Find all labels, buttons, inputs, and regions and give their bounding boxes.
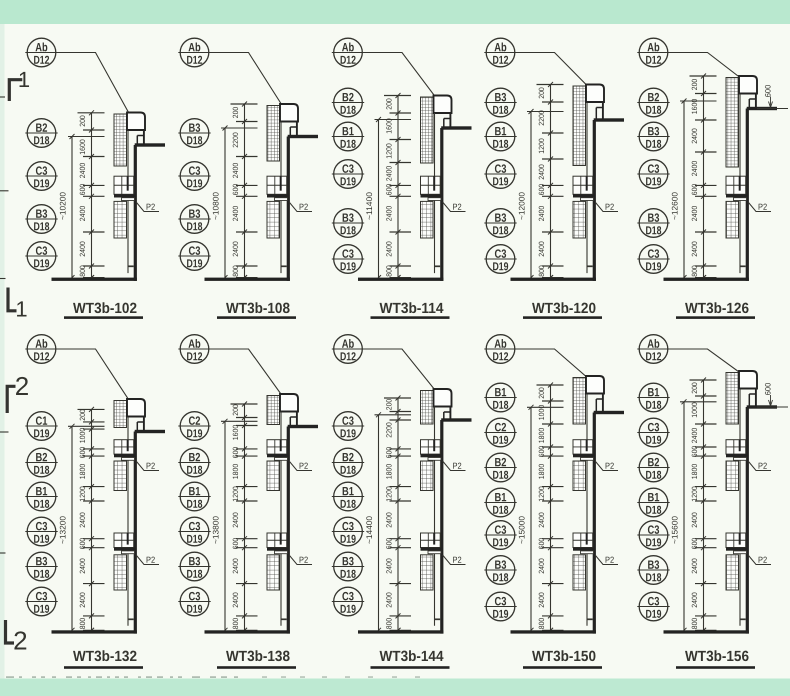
svg-text:D18: D18 [186,135,202,147]
svg-text:P2: P2 [146,461,155,471]
svg-text:D19: D19 [33,258,49,270]
svg-text:D19: D19 [645,435,661,447]
svg-text:2400: 2400 [690,241,699,257]
svg-text:1200: 1200 [231,486,240,502]
svg-text:B3: B3 [189,121,201,135]
svg-text:1200: 1200 [78,486,87,502]
svg-text:1200: 1200 [537,138,546,154]
svg-text:C3: C3 [36,244,48,258]
svg-text:~10800: ~10800 [212,192,221,220]
svg-text:2200: 2200 [385,422,394,438]
svg-text:800: 800 [78,265,87,277]
svg-text:D19: D19 [33,534,49,546]
svg-text:D18: D18 [645,139,661,151]
svg-text:2400: 2400 [537,558,546,574]
svg-text:2400: 2400 [385,241,394,257]
svg-text:WT3b-126: WT3b-126 [685,301,749,317]
svg-text:C3: C3 [648,594,660,608]
svg-text:D18: D18 [492,105,508,117]
svg-text:P2: P2 [146,202,155,212]
svg-text:P2: P2 [299,461,308,471]
svg-text:Ab: Ab [647,337,659,351]
svg-text:Ab: Ab [35,337,47,351]
svg-text:2200: 2200 [537,110,546,126]
svg-text:C3: C3 [648,420,660,434]
svg-text:1: 1 [18,67,30,92]
svg-text:600: 600 [78,184,87,196]
svg-text:~13200: ~13200 [59,516,68,544]
svg-text:2400: 2400 [231,241,240,257]
svg-text:~15600: ~15600 [671,516,680,544]
svg-text:D18: D18 [33,221,49,233]
svg-text:1200: 1200 [385,143,394,159]
svg-text:800: 800 [385,265,394,277]
svg-text:600: 600 [78,538,87,550]
svg-text:D19: D19 [645,261,661,273]
svg-text:B3: B3 [189,207,201,221]
svg-text:D18: D18 [492,225,508,237]
svg-text:600: 600 [385,538,394,550]
svg-text:WT3b-102: WT3b-102 [73,301,137,317]
svg-text:B3: B3 [189,554,201,568]
svg-text:D12: D12 [492,351,508,363]
svg-text:600: 600 [764,84,773,97]
svg-text:2400: 2400 [78,512,87,528]
svg-text:1000: 1000 [690,402,699,418]
svg-text:B2: B2 [189,450,201,464]
svg-text:600: 600 [690,446,699,458]
svg-text:Ab: Ab [647,40,659,54]
svg-text:200: 200 [78,409,87,421]
svg-text:D19: D19 [186,258,202,270]
svg-text:WT3b-156: WT3b-156 [685,649,749,665]
svg-text:2400: 2400 [231,163,240,179]
svg-text:~15000: ~15000 [518,516,527,544]
svg-text:2400: 2400 [537,592,546,608]
svg-text:~12600: ~12600 [671,192,680,220]
svg-text:800: 800 [537,618,546,630]
svg-text:C3: C3 [495,247,507,261]
svg-text:2400: 2400 [690,161,699,177]
svg-text:D18: D18 [492,400,508,412]
svg-text:D19: D19 [645,176,661,188]
svg-text:2400: 2400 [78,558,87,574]
svg-text:D19: D19 [492,435,508,447]
svg-text:C3: C3 [36,589,48,603]
svg-text:B3: B3 [342,211,354,225]
svg-text:C3: C3 [189,244,201,258]
svg-text:D12: D12 [33,55,49,67]
svg-text:600: 600 [537,184,546,196]
svg-text:1000: 1000 [78,428,87,444]
svg-text:WT3b-108: WT3b-108 [226,301,290,317]
svg-text:D18: D18 [340,105,356,117]
svg-text:C3: C3 [342,519,354,533]
svg-text:1800: 1800 [537,428,546,444]
svg-text:WT3b-120: WT3b-120 [532,301,596,317]
svg-text:600: 600 [231,184,240,196]
svg-text:2400: 2400 [78,206,87,222]
svg-text:Ab: Ab [342,337,354,351]
svg-text:2400: 2400 [385,512,394,528]
svg-text:D18: D18 [186,569,202,581]
svg-text:B1: B1 [342,124,354,138]
svg-text:600: 600 [537,446,546,458]
svg-text:B3: B3 [495,90,507,104]
svg-text:2400: 2400 [385,206,394,222]
svg-text:D19: D19 [645,537,661,549]
svg-text:D18: D18 [492,470,508,482]
svg-text:~10200: ~10200 [59,192,68,220]
svg-text:1200: 1200 [385,486,394,502]
svg-text:C3: C3 [342,589,354,603]
svg-text:2200: 2200 [231,132,240,148]
svg-text:B2: B2 [648,90,660,104]
svg-text:B3: B3 [648,558,660,572]
svg-text:D19: D19 [492,176,508,188]
svg-text:B2: B2 [342,90,354,104]
svg-text:2400: 2400 [537,206,546,222]
svg-text:D19: D19 [186,604,202,616]
svg-text:800: 800 [231,618,240,630]
svg-text:2: 2 [15,371,29,401]
svg-text:600: 600 [537,538,546,550]
svg-text:WT3b-132: WT3b-132 [73,649,137,665]
svg-text:D19: D19 [186,428,202,440]
svg-text:C3: C3 [342,247,354,261]
svg-text:200: 200 [690,382,699,394]
svg-text:Ab: Ab [342,40,354,54]
svg-text:B3: B3 [36,207,48,221]
svg-text:C2: C2 [189,414,201,428]
svg-text:P2: P2 [605,461,614,471]
svg-text:C3: C3 [495,594,507,608]
svg-text:D18: D18 [186,499,202,511]
svg-text:600: 600 [385,447,394,459]
svg-text:D12: D12 [186,351,202,363]
svg-text:2400: 2400 [385,558,394,574]
svg-text:D12: D12 [340,55,356,67]
svg-text:200: 200 [537,387,546,399]
svg-text:P2: P2 [758,461,767,471]
svg-text:B1: B1 [189,484,201,498]
svg-text:B2: B2 [36,121,48,135]
svg-text:600: 600 [78,447,87,459]
svg-text:D19: D19 [33,604,49,616]
svg-text:D19: D19 [340,261,356,273]
svg-text:P2: P2 [758,555,767,565]
svg-text:Ab: Ab [494,40,506,54]
svg-text:200: 200 [231,107,240,119]
svg-text:D18: D18 [340,139,356,151]
svg-text:D18: D18 [340,465,356,477]
svg-text:WT3b-144: WT3b-144 [379,649,444,665]
svg-text:B1: B1 [648,385,660,399]
svg-text:2: 2 [13,625,27,655]
svg-text:200: 200 [385,98,394,110]
svg-text:2400: 2400 [537,241,546,257]
svg-text:~14400: ~14400 [365,516,374,544]
svg-text:600: 600 [385,184,394,196]
svg-text:C2: C2 [495,420,507,434]
svg-text:D18: D18 [340,569,356,581]
svg-text:B3: B3 [495,558,507,572]
svg-text:B3: B3 [648,124,660,138]
svg-text:D18: D18 [186,465,202,477]
svg-text:800: 800 [78,618,87,630]
svg-text:2400: 2400 [78,241,87,257]
svg-text:B2: B2 [495,455,507,469]
svg-text:C3: C3 [189,519,201,533]
svg-text:B1: B1 [495,385,507,399]
svg-text:Ab: Ab [188,337,200,351]
svg-text:200: 200 [537,87,546,99]
svg-text:D18: D18 [186,221,202,233]
svg-text:2400: 2400 [690,206,699,222]
svg-text:800: 800 [690,265,699,277]
svg-text:D12: D12 [645,351,661,363]
svg-text:P2: P2 [452,555,461,565]
svg-text:2400: 2400 [231,206,240,222]
svg-text:D18: D18 [492,572,508,584]
svg-text:1800: 1800 [78,464,87,480]
svg-text:D19: D19 [33,428,49,440]
svg-text:D18: D18 [33,465,49,477]
svg-text:C3: C3 [648,162,660,176]
svg-text:D18: D18 [33,569,49,581]
svg-text:2400: 2400 [231,592,240,608]
svg-text:200: 200 [231,404,240,416]
svg-text:D19: D19 [492,261,508,273]
svg-text:D18: D18 [645,572,661,584]
svg-text:D18: D18 [492,505,508,517]
svg-text:~13800: ~13800 [212,516,221,544]
svg-text:P2: P2 [758,202,767,212]
svg-text:D12: D12 [492,55,508,67]
svg-text:200: 200 [690,79,699,91]
svg-text:C3: C3 [648,247,660,261]
svg-text:P2: P2 [452,461,461,471]
svg-text:B2: B2 [342,450,354,464]
svg-text:C1: C1 [36,414,48,428]
svg-text:800: 800 [690,618,699,630]
svg-text:D19: D19 [340,176,356,188]
svg-text:B3: B3 [648,211,660,225]
svg-text:P2: P2 [299,202,308,212]
svg-text:C3: C3 [495,523,507,537]
svg-text:600: 600 [231,538,240,550]
svg-text:1600: 1600 [385,118,394,134]
svg-text:600: 600 [231,447,240,459]
svg-text:B3: B3 [495,211,507,225]
svg-text:D19: D19 [186,534,202,546]
svg-text:P2: P2 [299,555,308,565]
svg-text:D18: D18 [645,400,661,412]
svg-text:D18: D18 [33,499,49,511]
svg-text:200: 200 [385,399,394,411]
svg-text:B1: B1 [495,124,507,138]
svg-text:Ab: Ab [35,40,47,54]
svg-text:D18: D18 [645,105,661,117]
svg-text:2400: 2400 [690,592,699,608]
svg-text:C3: C3 [189,164,201,178]
svg-text:2400: 2400 [690,428,699,444]
svg-text:B1: B1 [342,484,354,498]
svg-text:B3: B3 [36,554,48,568]
svg-text:600: 600 [690,184,699,196]
svg-text:1200: 1200 [537,486,546,502]
svg-text:2400: 2400 [690,512,699,528]
svg-text:D12: D12 [186,55,202,67]
svg-text:B3: B3 [342,554,354,568]
svg-text:2400: 2400 [537,164,546,180]
svg-text:B1: B1 [495,490,507,504]
svg-text:D19: D19 [340,534,356,546]
svg-text:1800: 1800 [537,464,546,480]
svg-text:800: 800 [231,265,240,277]
svg-text:2400: 2400 [78,592,87,608]
svg-text:1: 1 [15,296,27,321]
svg-text:1800: 1800 [690,464,699,480]
svg-text:D19: D19 [186,178,202,190]
svg-text:B2: B2 [36,450,48,464]
svg-text:D18: D18 [645,505,661,517]
svg-text:D18: D18 [645,470,661,482]
svg-text:C3: C3 [189,589,201,603]
svg-text:B1: B1 [36,484,48,498]
svg-text:Ab: Ab [494,337,506,351]
svg-text:D19: D19 [645,609,661,621]
svg-text:C3: C3 [342,162,354,176]
svg-text:C3: C3 [495,162,507,176]
svg-text:D12: D12 [340,351,356,363]
svg-text:D18: D18 [492,139,508,151]
svg-text:1800: 1800 [231,464,240,480]
svg-text:P2: P2 [452,202,461,212]
svg-text:600: 600 [690,538,699,550]
svg-text:2400: 2400 [690,128,699,144]
svg-text:800: 800 [385,618,394,630]
svg-text:2400: 2400 [537,512,546,528]
svg-text:B1: B1 [648,490,660,504]
svg-text:2400: 2400 [385,592,394,608]
svg-text:D12: D12 [33,351,49,363]
svg-text:D19: D19 [492,537,508,549]
svg-text:D18: D18 [645,225,661,237]
svg-text:WT3b-114: WT3b-114 [379,301,444,317]
svg-text:D18: D18 [340,499,356,511]
svg-text:P2: P2 [146,555,155,565]
svg-text:Ab: Ab [188,40,200,54]
svg-text:2400: 2400 [690,558,699,574]
svg-text:~11400: ~11400 [365,192,374,220]
svg-text:2400: 2400 [78,163,87,179]
svg-text:C3: C3 [648,523,660,537]
svg-text:P2: P2 [605,555,614,565]
svg-text:200: 200 [78,115,87,127]
svg-text:1800: 1800 [385,464,394,480]
svg-text:D18: D18 [33,135,49,147]
svg-text:D19: D19 [492,609,508,621]
svg-text:1000: 1000 [537,405,546,421]
svg-text:1600: 1600 [78,139,87,155]
svg-text:WT3b-138: WT3b-138 [226,649,290,665]
svg-text:600: 600 [764,382,773,395]
svg-text:D18: D18 [340,225,356,237]
svg-text:D19: D19 [33,178,49,190]
svg-text:1200: 1200 [690,486,699,502]
svg-text:800: 800 [537,265,546,277]
svg-text:C3: C3 [36,519,48,533]
svg-text:C3: C3 [36,164,48,178]
svg-text:B2: B2 [648,455,660,469]
svg-text:1600: 1600 [690,99,699,115]
svg-text:D19: D19 [340,604,356,616]
svg-text:D12: D12 [645,55,661,67]
svg-text:2400: 2400 [231,558,240,574]
svg-text:2400: 2400 [231,512,240,528]
svg-text:WT3b-150: WT3b-150 [532,649,596,665]
svg-text:1600: 1600 [231,425,240,441]
svg-text:D19: D19 [340,428,356,440]
svg-text:C3: C3 [342,414,354,428]
svg-text:2400: 2400 [385,166,394,182]
svg-text:~12000: ~12000 [518,192,527,220]
svg-text:P2: P2 [605,202,614,212]
